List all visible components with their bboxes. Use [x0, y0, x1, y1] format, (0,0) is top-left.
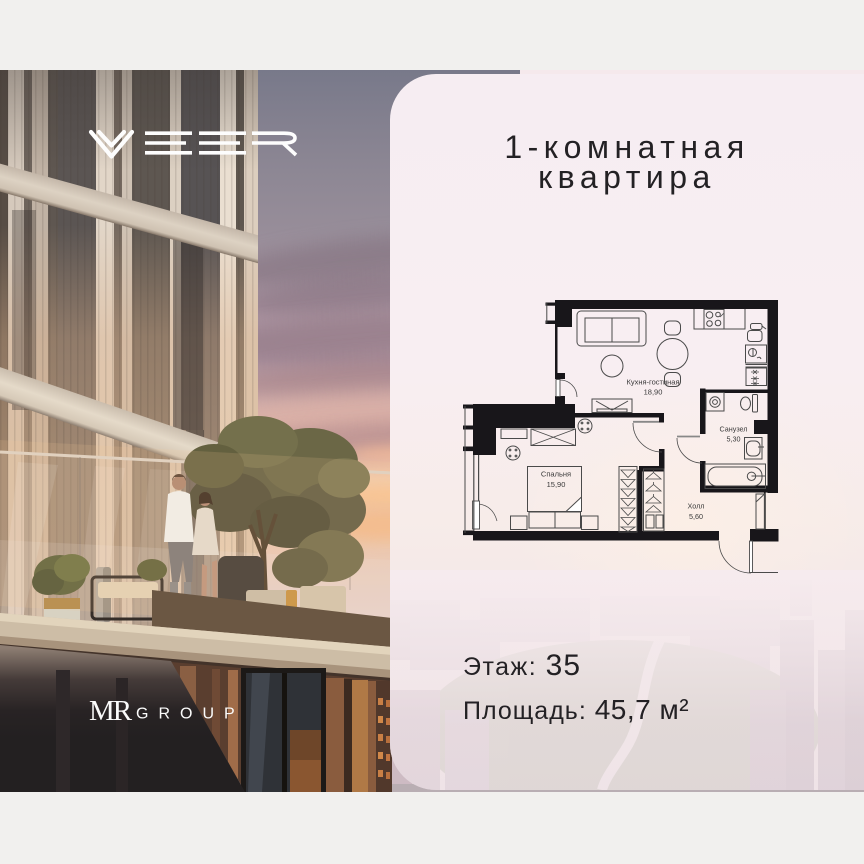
svg-text:5,60: 5,60 [689, 512, 703, 521]
svg-text:Кухня-гостиная: Кухня-гостиная [626, 378, 679, 387]
svg-text:Санузел: Санузел [720, 425, 748, 434]
svg-text:18,90: 18,90 [644, 388, 663, 397]
svg-text:GROUP: GROUP [136, 706, 238, 723]
svg-text:15,90: 15,90 [547, 480, 566, 489]
svg-text:MR: MR [89, 696, 133, 724]
svg-text:5,30: 5,30 [727, 435, 741, 444]
svg-text:Спальня: Спальня [541, 470, 571, 479]
svg-text:Холл: Холл [688, 502, 705, 511]
